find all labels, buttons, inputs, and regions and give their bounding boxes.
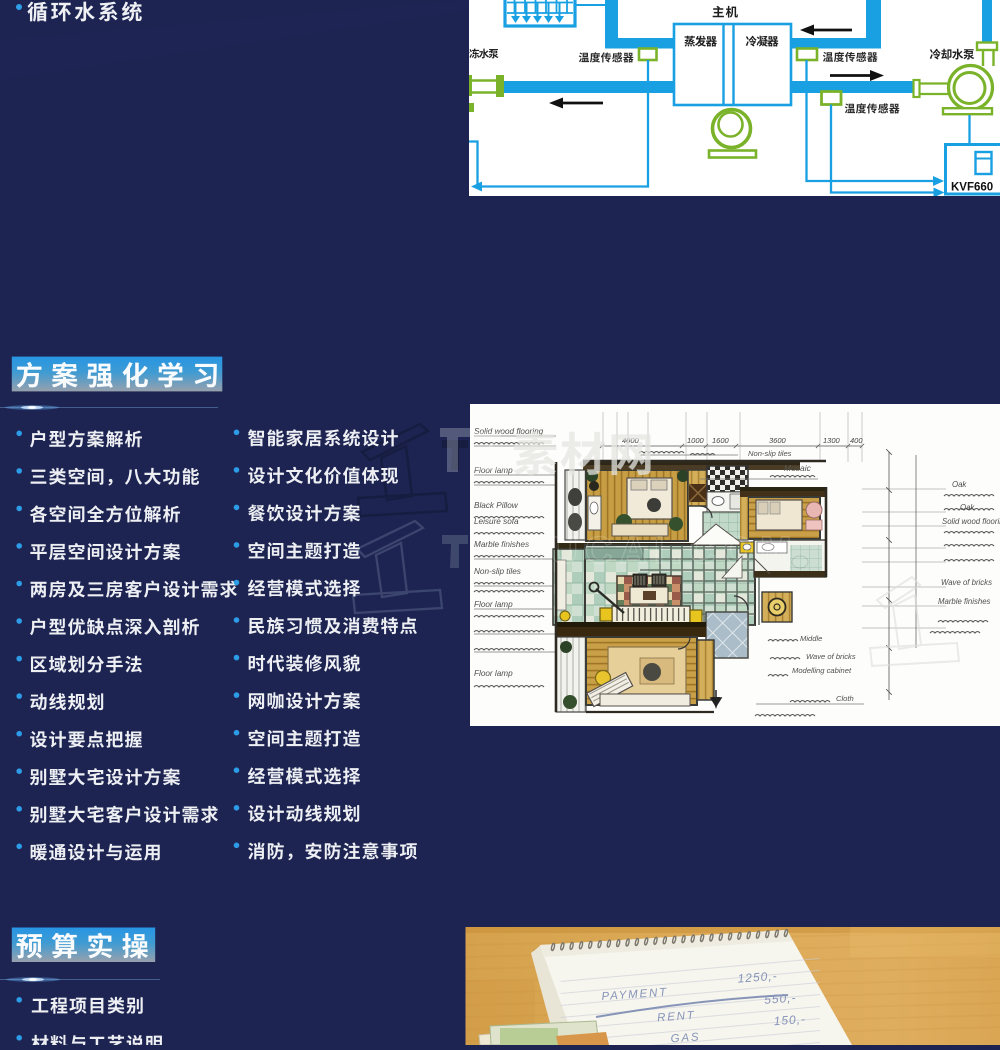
svg-text:GAS: GAS	[670, 1031, 700, 1045]
svg-text:Wave of bricks: Wave of bricks	[941, 578, 992, 587]
svg-text:1300: 1300	[823, 436, 841, 445]
svg-text:ZSUCAI.COM: ZSUCAI.COM	[488, 530, 799, 572]
svg-text:Solid wood flooring: Solid wood flooring	[942, 517, 1000, 526]
svg-text:Oak: Oak	[952, 480, 967, 489]
svg-text:Marble finishes: Marble finishes	[938, 597, 991, 606]
svg-text:400: 400	[850, 436, 863, 445]
svg-text:Non-slip tiles: Non-slip tiles	[748, 449, 792, 458]
svg-text:Floor lamp: Floor lamp	[474, 600, 513, 609]
svg-text:Cloth: Cloth	[836, 694, 854, 703]
svg-text:1000: 1000	[687, 436, 705, 445]
svg-text:Leisure sofa: Leisure sofa	[474, 517, 519, 526]
svg-text:150,-: 150,-	[773, 1012, 806, 1028]
svg-text:Oak: Oak	[960, 503, 975, 512]
svg-text:550,-: 550,-	[764, 991, 797, 1007]
svg-text:Mosaic: Mosaic	[784, 463, 812, 473]
svg-text:KVF660: KVF660	[951, 182, 993, 194]
svg-text:Modelling cabinet: Modelling cabinet	[792, 666, 852, 675]
svg-text:Black Pillow: Black Pillow	[474, 501, 519, 510]
svg-text:3600: 3600	[769, 436, 787, 445]
svg-text:Wave of bricks: Wave of bricks	[806, 652, 856, 661]
svg-text:1250,-: 1250,-	[737, 969, 778, 986]
svg-text:Middle: Middle	[800, 634, 822, 643]
svg-text:1600: 1600	[712, 436, 730, 445]
svg-text:Floor lamp: Floor lamp	[474, 669, 513, 678]
